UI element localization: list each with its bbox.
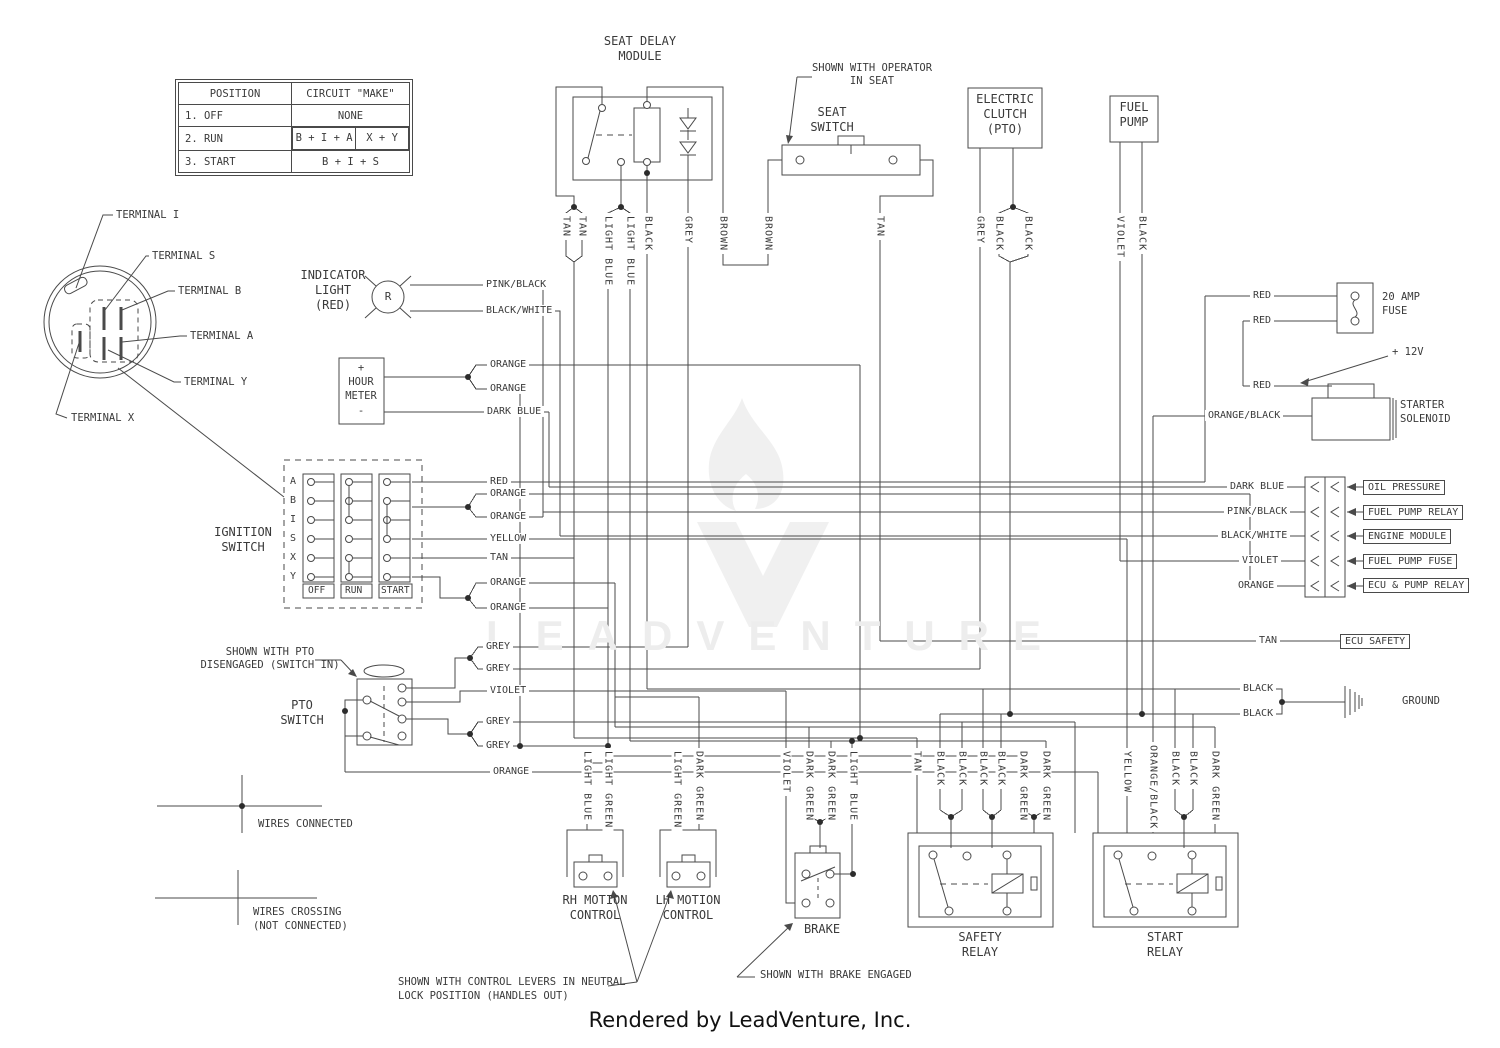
wire-label-orange: ORANGE	[487, 359, 529, 370]
wire-label-light-blue: LIGHT BLUE	[625, 213, 636, 289]
wire-label-tan: TAN	[912, 748, 923, 775]
ignition-row-label: B	[290, 495, 296, 506]
fuse-label: 20 AMP FUSE	[1382, 291, 1420, 318]
wire-label-light-blue: LIGHT BLUE	[603, 213, 614, 289]
fuel-pump-fuse-box: FUEL PUMP FUSE	[1363, 554, 1457, 569]
engine-module-box: ENGINE MODULE	[1363, 529, 1451, 544]
twelve-volt-label: + 12V	[1392, 346, 1424, 360]
wire-label-orange: ORANGE	[487, 602, 529, 613]
ground-label: GROUND	[1402, 695, 1440, 709]
table-subcell: X + Y	[356, 128, 408, 149]
table-header-circuit: CIRCUIT "MAKE"	[292, 83, 410, 105]
indicator-light-label: INDICATOR LIGHT (RED)	[300, 268, 365, 313]
wire-label-black-white: BLACK/WHITE	[1218, 530, 1290, 541]
table-cell: 1. OFF	[179, 105, 292, 127]
table-cell: B + I + AX + Y	[292, 127, 409, 150]
wiring-diagram: LEADVENTURE	[0, 0, 1500, 1048]
wire-label-black: BLACK	[1137, 213, 1148, 254]
fuel-pump-relay-box: FUEL PUMP RELAY	[1363, 505, 1463, 520]
brake-label: BRAKE	[804, 922, 840, 937]
wire-label-grey: GREY	[483, 716, 513, 727]
table-subcell: B + I + A	[293, 128, 356, 149]
terminal-label: TERMINAL S	[152, 250, 215, 262]
ignition-switch-label: IGNITION SWITCH	[214, 525, 272, 555]
ignition-position-label: RUN	[345, 585, 362, 596]
table-cell: NONE	[292, 105, 410, 127]
wire-label-black: BLACK	[1240, 683, 1276, 694]
wire-label-light-green: LIGHT GREEN	[672, 748, 683, 831]
ignition-position-label: START	[381, 585, 410, 596]
ignition-switch-contacts	[308, 479, 411, 581]
wire-label-dark-green: DARK GREEN	[804, 748, 815, 824]
wire-label-yellow: YELLOW	[487, 533, 529, 544]
seat-switch-label: SEAT SWITCH	[810, 105, 853, 135]
connector-arrowheads	[1347, 483, 1356, 590]
seat-switch-note: SHOWN WITH OPERATOR IN SEAT	[812, 62, 932, 88]
ecu-safety-box: ECU SAFETY	[1340, 634, 1410, 649]
wire-label-red: RED	[1250, 290, 1274, 301]
wire-label-tan: TAN	[1256, 635, 1280, 646]
wire-label-dark-green: DARK GREEN	[1210, 748, 1221, 824]
wire-label-red: RED	[1250, 380, 1274, 391]
wire-label-violet: VIOLET	[487, 685, 529, 696]
wire-label-light-green: LIGHT GREEN	[603, 748, 614, 831]
wire-label-tan: TAN	[875, 213, 886, 240]
rh-motion-control-label: RH MOTION CONTROL	[562, 893, 627, 923]
watermark-text: LEADVENTURE	[486, 612, 1065, 660]
wire-label-orange: ORANGE	[490, 766, 532, 777]
table-cell: 2. RUN	[179, 127, 292, 151]
wire-label-orange: ORANGE	[487, 577, 529, 588]
wire-label-yellow: YELLOW	[1122, 748, 1133, 796]
oil-pressure-box: OIL PRESSURE	[1363, 480, 1445, 495]
terminal-label: TERMINAL X	[71, 412, 134, 424]
wire-label-orange: ORANGE	[487, 488, 529, 499]
terminal-label: TERMINAL I	[116, 209, 179, 221]
wire-label-black: BLACK	[1188, 748, 1199, 789]
wire-label-pink-black: PINK/BLACK	[483, 279, 549, 290]
wire-label-grey: GREY	[683, 213, 694, 247]
wire-label-black: BLACK	[978, 748, 989, 789]
wire-label-orange-black: ORANGE/BLACK	[1205, 410, 1283, 421]
wire-label-pink-black: PINK/BLACK	[1224, 506, 1290, 517]
wire-label-black-white: BLACK/WHITE	[483, 305, 555, 316]
table-cell: B + I + S	[292, 151, 410, 173]
wire-label-violet: VIOLET	[1239, 555, 1281, 566]
wire-label-brown: BROWN	[763, 213, 774, 254]
wire-label-violet: VIOLET	[1115, 213, 1126, 261]
terminal-label: TERMINAL B	[178, 285, 241, 297]
wire-label-violet: VIOLET	[781, 748, 792, 796]
wire-label-black: BLACK	[1170, 748, 1181, 789]
wire-label-orange: ORANGE	[1235, 580, 1277, 591]
seat-delay-module-label: SEAT DELAY MODULE	[604, 34, 676, 64]
wire-label-dark-green: DARK GREEN	[1018, 748, 1029, 824]
wire-label-dark-blue: DARK BLUE	[484, 406, 544, 417]
electric-clutch-label: ELECTRIC CLUTCH (PTO)	[976, 92, 1034, 137]
ignition-row-label: Y	[290, 571, 296, 582]
wire-label-black: BLACK	[643, 213, 654, 254]
wire-label-dark-green: DARK GREEN	[826, 748, 837, 824]
terminal-label: TERMINAL Y	[184, 376, 247, 388]
wire-label-grey: GREY	[483, 641, 513, 652]
levers-caption: SHOWN WITH CONTROL LEVERS IN NEUTRAL LOC…	[398, 976, 626, 1003]
wire-label-grey: GREY	[975, 213, 986, 247]
hour-meter-label: + HOUR METER -	[345, 361, 377, 418]
ignition-row-label: I	[290, 514, 296, 525]
pto-switch-label: PTO SWITCH	[280, 698, 323, 728]
wire-label-black: BLACK	[996, 748, 1007, 789]
wire-label-tan: TAN	[577, 213, 588, 240]
wire-label-black: BLACK	[1240, 708, 1276, 719]
ignition-position-label: OFF	[308, 585, 325, 596]
indicator-symbol: R	[385, 290, 392, 304]
position-circuit-table: POSITION CIRCUIT "MAKE" 1. OFF NONE 2. R…	[178, 82, 410, 173]
wire-label-brown: BROWN	[718, 213, 729, 254]
pto-note: SHOWN WITH PTO DISENGAGED (SWITCH IN)	[200, 646, 339, 672]
ecu-pump-relay-box: ECU & PUMP RELAY	[1363, 578, 1469, 593]
ignition-row-label: S	[290, 533, 296, 544]
wire-label-orange-black: ORANGE/BLACK	[1148, 742, 1159, 832]
wire-label-light-blue: LIGHT BLUE	[848, 748, 859, 824]
brake-caption: SHOWN WITH BRAKE ENGAGED	[760, 969, 912, 983]
wire-label-black: BLACK	[935, 748, 946, 789]
terminal-label: TERMINAL A	[190, 330, 253, 342]
lh-motion-control-label: LH MOTION CONTROL	[655, 893, 720, 923]
table-header-position: POSITION	[179, 83, 292, 105]
wire-label-red: RED	[1250, 315, 1274, 326]
ignition-row-label: A	[290, 476, 296, 487]
ignition-row-label: X	[290, 552, 296, 563]
wires-connected-label: WIRES CONNECTED	[258, 818, 353, 830]
wire-label-grey: GREY	[483, 740, 513, 751]
wire-label-dark-green: DARK GREEN	[1041, 748, 1052, 824]
wire-label-light-blue: LIGHT BLUE	[582, 748, 593, 824]
wire-label-black: BLACK	[994, 213, 1005, 254]
wire-label-orange: ORANGE	[487, 511, 529, 522]
wire-label-orange: ORANGE	[487, 383, 529, 394]
fuel-pump-label: FUEL PUMP	[1120, 100, 1149, 130]
wire-label-tan: TAN	[561, 213, 572, 240]
wire-label-black: BLACK	[957, 748, 968, 789]
wire-label-dark-blue: DARK BLUE	[1227, 481, 1287, 492]
table-cell: 3. START	[179, 151, 292, 173]
wires-crossing-label: WIRES CROSSING (NOT CONNECTED)	[253, 906, 348, 933]
wire-label-tan: TAN	[487, 552, 511, 563]
wire-label-grey: GREY	[483, 663, 513, 674]
rendered-by-footer: Rendered by LeadVenture, Inc.	[589, 1008, 912, 1032]
starter-solenoid-label: STARTER SOLENOID	[1400, 399, 1451, 426]
wire-label-red: RED	[487, 476, 511, 487]
wire-label-dark-green: DARK GREEN	[694, 748, 705, 824]
wire-label-black: BLACK	[1023, 213, 1034, 254]
safety-relay-label: SAFETY RELAY	[958, 930, 1001, 960]
start-relay-label: START RELAY	[1147, 930, 1183, 960]
